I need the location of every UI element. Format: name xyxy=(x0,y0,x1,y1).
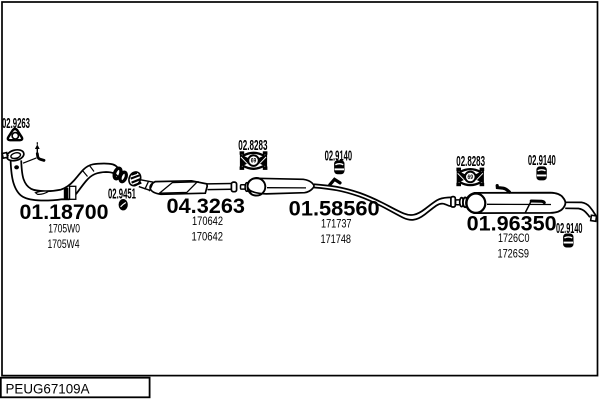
svg-text:171748: 171748 xyxy=(321,232,352,246)
svg-text:02.8283: 02.8283 xyxy=(238,138,267,154)
svg-text:1705W0: 1705W0 xyxy=(48,222,80,236)
svg-text:02.9263: 02.9263 xyxy=(2,116,30,132)
svg-text:170642: 170642 xyxy=(192,230,224,244)
svg-text:PEUG67109A: PEUG67109A xyxy=(6,381,91,397)
svg-text:02.9140: 02.9140 xyxy=(556,221,583,237)
svg-text:1705W4: 1705W4 xyxy=(48,237,80,251)
svg-text:170642: 170642 xyxy=(192,214,223,228)
svg-text:02.9451: 02.9451 xyxy=(108,187,136,203)
svg-text:01.18700: 01.18700 xyxy=(20,201,109,224)
svg-text:1726S9: 1726S9 xyxy=(498,247,530,261)
svg-text:02.8283: 02.8283 xyxy=(456,154,485,170)
svg-text:02.9140: 02.9140 xyxy=(528,153,556,169)
svg-text:1726C0: 1726C0 xyxy=(498,231,530,245)
svg-text:02.9140: 02.9140 xyxy=(325,148,353,164)
svg-text:171737: 171737 xyxy=(321,217,352,231)
